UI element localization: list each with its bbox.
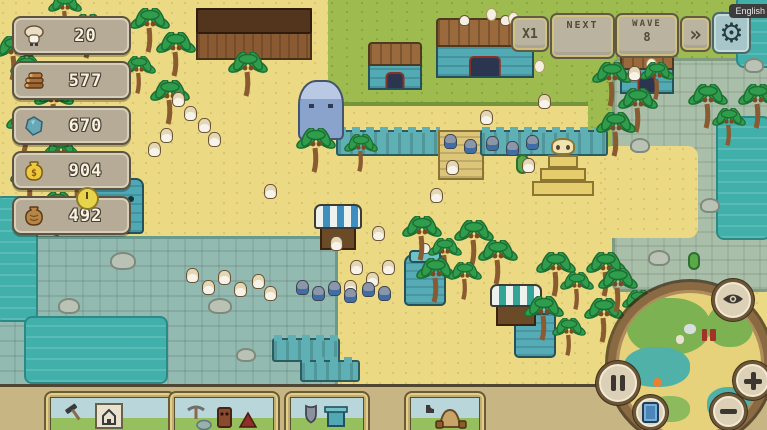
resource-panel-stone: 670 [12, 106, 131, 145]
soldier-unit[interactable] [344, 288, 357, 303]
hammer-blueprint-icon [50, 397, 170, 430]
wave-number: 8 [643, 30, 650, 44]
palm-icon [552, 318, 586, 357]
palm-tree [640, 62, 674, 101]
language-badge[interactable]: English [729, 4, 767, 18]
soldier-unit[interactable] [296, 280, 309, 295]
plus-icon [744, 372, 762, 390]
timer-icon [76, 187, 99, 210]
eye-icon [722, 291, 744, 310]
palm-tree [228, 52, 268, 98]
palm-icon [228, 52, 268, 98]
rock-prop [110, 252, 136, 270]
population-value: 20 [48, 26, 123, 46]
boot-tent-icon [410, 397, 480, 430]
villager-unit[interactable] [372, 226, 385, 241]
minimap-town-dot [684, 324, 696, 334]
palm-icon [448, 262, 482, 301]
palm-icon [640, 62, 674, 101]
resource-panel-wood: 577 [12, 61, 131, 100]
villager-unit[interactable] [522, 158, 535, 173]
gold-value: 904 [48, 161, 123, 181]
soldier-unit[interactable] [486, 136, 499, 151]
pause-button[interactable] [596, 361, 640, 405]
villager-unit[interactable] [252, 274, 265, 289]
unit-icon [20, 23, 48, 49]
soldier-unit[interactable] [464, 139, 477, 154]
palm-icon [156, 32, 196, 78]
villager-unit[interactable] [184, 106, 197, 121]
minimap-town-dot [676, 335, 685, 344]
villager-unit[interactable] [330, 236, 343, 251]
wood-value: 577 [48, 71, 123, 91]
egg-prop [534, 60, 545, 73]
pickaxe-camp-icon [174, 397, 274, 430]
rock-prop [648, 250, 670, 266]
reveal-button[interactable] [712, 279, 754, 321]
build-menu-button[interactable] [44, 391, 176, 430]
fast-forward-button[interactable]: » [680, 16, 711, 52]
villager-unit[interactable] [160, 128, 173, 143]
villager-unit[interactable] [172, 92, 185, 107]
camps-menu-button[interactable] [168, 391, 280, 430]
skull-pyramid[interactable] [534, 138, 592, 196]
rock-prop [236, 348, 256, 362]
shield-tower-icon [290, 397, 364, 430]
wave-label: WAVE [632, 19, 662, 29]
palm-icon [738, 84, 767, 130]
gold-pouch-icon: $ [20, 158, 48, 184]
palm-tree [596, 112, 636, 158]
game-viewport: 20 577 670 $ 904 492 X1 NEXT WAVE 8 » ⚙ … [0, 0, 767, 430]
palm-tree [738, 84, 767, 130]
logistics-menu-button[interactable] [404, 391, 486, 430]
journal-button[interactable] [633, 395, 668, 430]
palm-tree [344, 134, 378, 173]
sand-clearing [602, 146, 698, 238]
rock-pool-area [24, 316, 168, 384]
settings-button[interactable]: ⚙ [712, 12, 751, 54]
zoom-out-button[interactable] [710, 393, 747, 430]
palm-tree [478, 240, 518, 286]
stone-wall[interactable] [300, 360, 360, 382]
gear-icon: ⚙ [719, 18, 743, 49]
stone-icon [20, 113, 48, 139]
villager-unit[interactable] [628, 66, 641, 81]
villager-unit[interactable] [538, 94, 551, 109]
side-fort[interactable] [368, 42, 422, 90]
villager-unit[interactable] [148, 142, 161, 157]
journal-icon [642, 402, 659, 423]
palm-tree [156, 32, 196, 78]
minimap-enemy-dot [710, 329, 716, 341]
villager-unit[interactable] [430, 188, 443, 203]
egg-prop [486, 8, 497, 21]
palm-icon [296, 128, 336, 174]
cactus-prop [688, 252, 700, 270]
soldier-unit[interactable] [444, 134, 457, 149]
villager-unit[interactable] [382, 260, 395, 275]
villager-unit[interactable] [264, 184, 277, 199]
stone-value: 670 [48, 116, 123, 136]
villager-unit[interactable] [208, 132, 221, 147]
villager-unit[interactable] [198, 118, 211, 133]
palm-icon [344, 134, 378, 173]
soldier-unit[interactable] [362, 282, 375, 297]
minimap-enemy-dot [702, 329, 708, 341]
soldier-unit[interactable] [506, 141, 519, 156]
rock-prop [208, 298, 232, 314]
palm-icon [478, 240, 518, 286]
defense-menu-button[interactable] [284, 391, 370, 430]
soldier-unit[interactable] [312, 286, 325, 301]
svg-text:$: $ [31, 168, 37, 179]
soldier-unit[interactable] [328, 281, 341, 296]
villager-unit[interactable] [234, 282, 247, 297]
fast-forward-icon: » [689, 22, 701, 46]
zoom-in-button[interactable] [733, 361, 767, 400]
palm-tree [448, 262, 482, 301]
next-wave-button[interactable]: NEXT [550, 13, 615, 59]
villager-unit[interactable] [202, 280, 215, 295]
pause-icon [611, 375, 625, 391]
villager-unit[interactable] [446, 160, 459, 175]
villager-unit[interactable] [186, 268, 199, 283]
wave-panel: WAVE 8 [615, 13, 679, 58]
minus-icon [720, 409, 737, 414]
villager-unit[interactable] [480, 110, 493, 125]
villager-unit[interactable] [350, 260, 363, 275]
palm-tree [552, 318, 586, 357]
villager-unit[interactable] [264, 286, 277, 301]
wood-icon [20, 68, 48, 94]
rock-prop [58, 298, 80, 314]
palm-tree [296, 128, 336, 174]
resource-panel-population: 20 [12, 16, 131, 55]
rock-prop [700, 198, 720, 213]
supply-pouch-icon [20, 203, 48, 229]
rock-prop [744, 58, 764, 73]
soldier-unit[interactable] [526, 135, 539, 150]
soldier-unit[interactable] [378, 286, 391, 301]
palm-icon [596, 112, 636, 158]
resource-panel-gold: $ 904 [12, 151, 131, 190]
villager-unit[interactable] [218, 270, 231, 285]
minimap-player-marker [653, 378, 662, 387]
resource-panel-supplies: 492 [12, 196, 131, 235]
game-speed-button[interactable]: X1 [511, 16, 549, 52]
